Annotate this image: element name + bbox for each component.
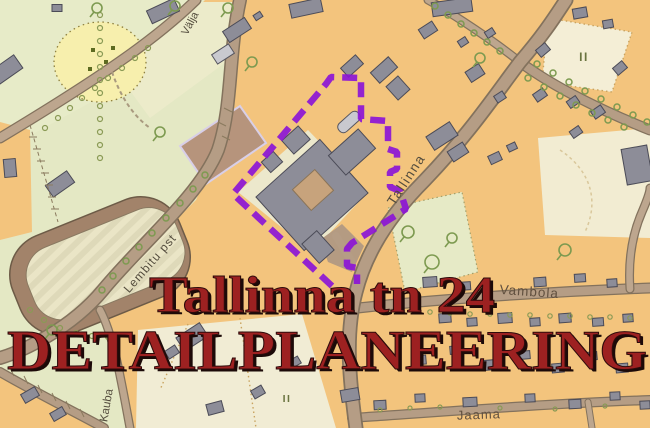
- storeys-marking-ne: II: [579, 50, 589, 64]
- overlay-line1: Tallinna tn 24: [149, 267, 495, 324]
- street-label-jaama: Jaama: [457, 406, 502, 423]
- storeys-marking-s: II: [283, 393, 292, 405]
- map-canvas: Välja Tallinna Lembitu pst Vambola Jaama…: [0, 0, 650, 428]
- overlay-line2: DETAILPLANEERING: [7, 320, 647, 382]
- map-screenshot: Välja Tallinna Lembitu pst Vambola Jaama…: [0, 0, 650, 428]
